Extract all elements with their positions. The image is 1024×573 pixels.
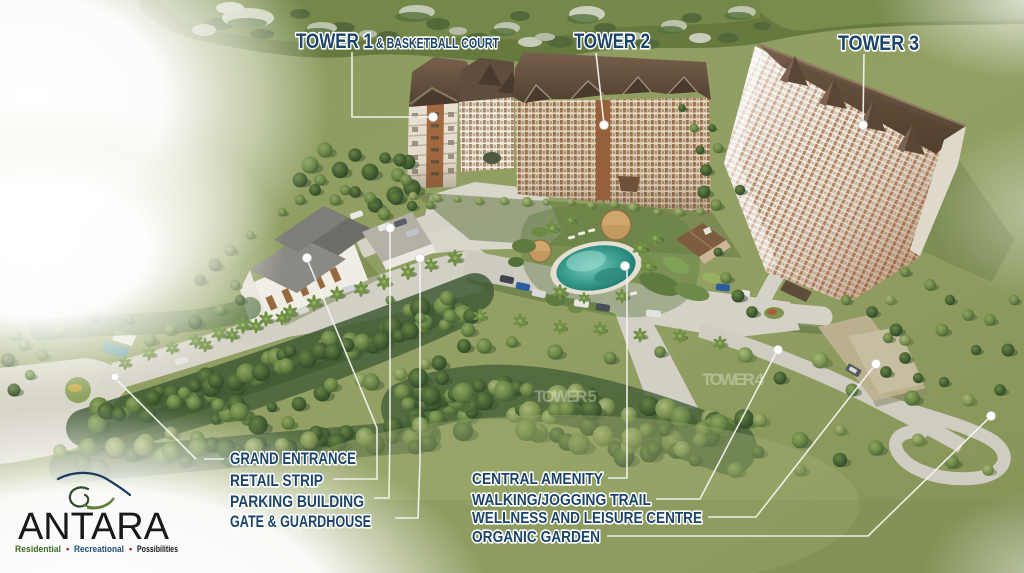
svg-text:ORGANIC GARDEN: ORGANIC GARDEN — [472, 529, 600, 546]
svg-text:TOWER 1: TOWER 1 — [296, 30, 373, 53]
svg-text:•: • — [66, 543, 69, 554]
svg-text:TOWER 5: TOWER 5 — [534, 387, 597, 406]
svg-text:GRAND ENTRANCE: GRAND ENTRANCE — [230, 449, 356, 468]
svg-text:& BASKETBALL COURT: & BASKETBALL COURT — [376, 35, 499, 52]
svg-text:WELLNESS AND LEISURE CENTRE: WELLNESS AND LEISURE CENTRE — [472, 510, 702, 527]
svg-text:ANTARA: ANTARA — [18, 506, 170, 548]
svg-text:Possibilities: Possibilities — [137, 543, 178, 554]
svg-text:Residential: Residential — [15, 543, 61, 554]
svg-text:WALKING/JOGGING TRAIL: WALKING/JOGGING TRAIL — [472, 492, 651, 509]
svg-text:TOWER 3: TOWER 3 — [838, 32, 919, 55]
svg-text:Recreational: Recreational — [74, 543, 124, 554]
svg-text:TOWER 2: TOWER 2 — [574, 30, 650, 53]
svg-text:RETAIL STRIP: RETAIL STRIP — [230, 471, 323, 490]
svg-text:PARKING BUILDING: PARKING BUILDING — [230, 492, 364, 511]
svg-text:GATE & GUARDHOUSE: GATE & GUARDHOUSE — [230, 512, 371, 531]
svg-text:TOWER 4: TOWER 4 — [702, 370, 765, 389]
svg-text:•: • — [129, 543, 132, 554]
svg-text:CENTRAL AMENITY: CENTRAL AMENITY — [472, 471, 603, 488]
